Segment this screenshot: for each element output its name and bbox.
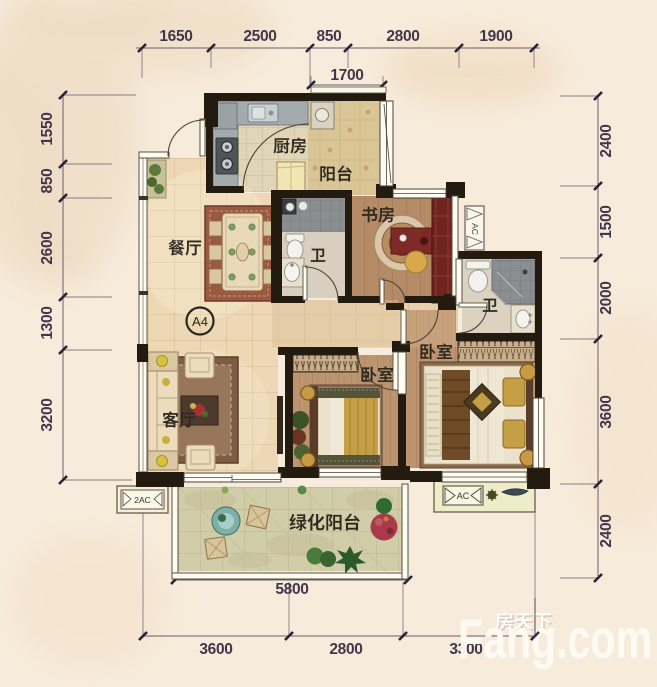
svg-text:2400: 2400 (598, 514, 615, 547)
svg-text:AC: AC (470, 223, 480, 235)
svg-text:A4: A4 (192, 314, 208, 329)
svg-text:850: 850 (317, 28, 342, 45)
svg-text:2AC: 2AC (134, 495, 151, 505)
svg-text:1300: 1300 (39, 306, 56, 339)
svg-text:1700: 1700 (330, 67, 363, 84)
svg-text:2800: 2800 (386, 28, 419, 45)
svg-text:1500: 1500 (598, 205, 615, 238)
svg-text:2400: 2400 (598, 124, 615, 157)
svg-text:3600: 3600 (598, 395, 615, 428)
svg-text:2000: 2000 (598, 281, 615, 314)
svg-text:5800: 5800 (275, 581, 308, 598)
svg-text:1650: 1650 (159, 28, 192, 45)
svg-text:850: 850 (39, 169, 56, 194)
svg-text:2800: 2800 (329, 641, 362, 658)
svg-text:2500: 2500 (243, 28, 276, 45)
svg-text:1900: 1900 (479, 28, 512, 45)
svg-text:1550: 1550 (39, 112, 56, 145)
svg-text:3200: 3200 (39, 398, 56, 431)
svg-text:AC: AC (457, 491, 470, 501)
svg-text:3600: 3600 (199, 641, 232, 658)
svg-text:Fang.com: Fang.com (458, 607, 652, 670)
svg-text:2600: 2600 (39, 231, 56, 264)
